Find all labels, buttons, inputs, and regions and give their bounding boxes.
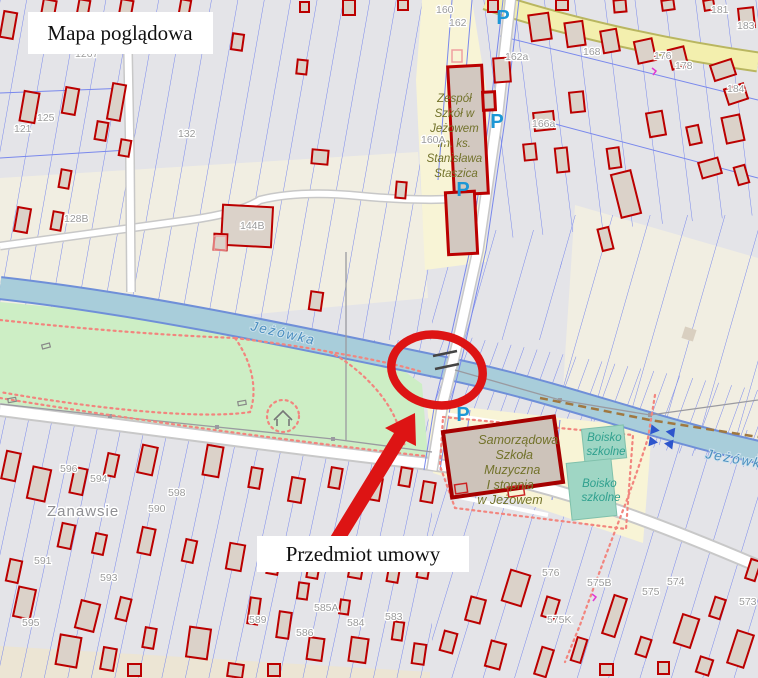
parcel-number-label: 586 [296,627,314,639]
parcel-number-label: 121 [14,123,32,135]
building [646,111,666,137]
building [51,211,64,230]
building [412,643,427,664]
building [231,33,244,50]
parcel-number-label: 160A [421,134,446,146]
building [100,647,117,671]
building [569,91,585,112]
building [556,0,568,10]
building [142,627,156,649]
building [276,611,292,638]
building [607,147,622,168]
building [661,0,674,11]
building [686,125,701,145]
parcel-number-label: 166a [532,118,556,130]
building [398,0,408,10]
building [600,29,620,53]
building [658,662,669,674]
building [288,477,305,503]
map-canvas[interactable]: Zespół Szkół w Jeżowem im. ks. Stanisław… [0,0,758,678]
parcel-number-label: 168 [583,46,601,58]
building [248,467,262,489]
building [395,182,406,199]
map-screenshot: Zespół Szkół w Jeżowem im. ks. Stanisław… [0,0,758,678]
building [226,543,245,571]
map-title-box: Mapa poglądowa [28,12,213,54]
parcel-number-label: 594 [90,473,108,485]
parcel-number-label: 181 [711,4,729,16]
parcel-number-label: 584 [347,617,365,629]
building [128,664,141,676]
parcel-number-label: 598 [168,487,186,499]
building [523,143,537,160]
map-title: Mapa poglądowa [47,21,193,45]
building [343,0,355,15]
parcel-number-label: 590 [148,503,166,515]
building [399,467,413,487]
building [392,621,404,640]
parcel-number-label: 589 [249,614,267,626]
parcel-number-label: 176 [654,50,672,62]
building [297,582,309,599]
building [564,21,585,47]
parcel-number-label: 184 [727,83,745,95]
parcel-number-label: 162a [505,51,529,63]
parking-icon: P [490,111,503,133]
building [95,121,109,141]
parcel-number-label: 178 [675,60,693,72]
building [555,147,569,172]
parcel-number-label: 132 [178,128,196,140]
building [307,637,325,661]
building [119,139,132,156]
building [348,637,368,663]
parcel-number-label: 125 [37,112,55,124]
building [296,60,307,75]
parcel-number-label: 574 [667,576,685,588]
building [613,0,626,13]
building [300,2,309,12]
parcel-number-label: 576 [542,567,560,579]
building [59,169,72,188]
parking-icon: P [496,7,509,29]
parcel-number-label: 585A [314,602,339,614]
parcel-number-label: 183 [737,20,755,32]
parcel-number-label: 596 [60,463,78,475]
parcel-number-label: 591 [34,555,52,567]
parcel-number-label: 160 [436,4,454,16]
building [14,207,31,233]
building [186,627,211,660]
building [634,38,656,63]
parcel-number-label: 595 [22,617,40,629]
subject-label: Przedmiot umowy [286,542,441,566]
building [339,599,350,614]
place-name-label: Zanawsie [47,503,119,520]
parcel-number-label: 575K [547,614,572,626]
building [600,664,613,675]
building [311,149,328,164]
building [268,664,280,676]
parcel-number-label: 128B [64,213,89,225]
building [328,467,342,489]
building [420,481,435,503]
building [227,663,244,678]
building [56,634,82,667]
parcel-number-label: 144B [240,220,265,232]
building [528,13,551,42]
subject-label-box: Przedmiot umowy [257,536,469,572]
parcel-number-label: 583 [385,611,403,623]
parking-icon: P [456,404,469,426]
parcel-number-label: 162 [449,17,467,29]
building [309,291,323,310]
parcel-number-label: 573 [739,596,757,608]
parcel-number-label: 575 [642,586,660,598]
parcel-number-label: 575B [587,577,612,589]
parking-icon: P [456,179,469,201]
parcel-number-label: 593 [100,572,118,584]
